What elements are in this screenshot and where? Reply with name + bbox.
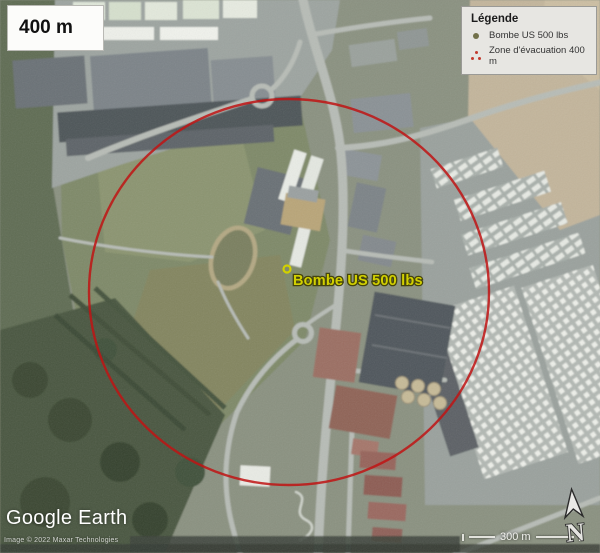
satellite-map[interactable]: Bombe US 500 lbs — [0, 0, 600, 553]
north-arrow: N — [553, 486, 594, 549]
evacuation-zone-icon — [471, 51, 482, 61]
scale-annotation-box: 400 m — [7, 5, 104, 51]
legend-item-label: Bombe US 500 lbs — [489, 30, 568, 41]
scale-bar-line — [469, 536, 495, 538]
north-label: N — [565, 517, 586, 548]
scale-bar-label: 300 m — [500, 531, 531, 543]
legend: Légende Bombe US 500 lbs Zone d'évacuati… — [461, 6, 597, 75]
legend-item-label: Zone d'évacuation 400 m — [489, 45, 589, 67]
imagery-copyright: Image © 2022 Maxar Technologies — [4, 537, 118, 544]
scale-bar-tick — [462, 534, 464, 541]
bomb-point-icon — [471, 31, 482, 41]
legend-item-zone: Zone d'évacuation 400 m — [471, 45, 589, 67]
legend-item-bomb: Bombe US 500 lbs — [471, 30, 589, 41]
legend-title: Légende — [471, 13, 589, 25]
bomb-marker-label: Bombe US 500 lbs — [293, 273, 423, 289]
scale-annotation-label: 400 m — [19, 17, 73, 39]
map-viewport[interactable]: Bombe US 500 lbs 400 m Légende Bombe US … — [0, 0, 600, 553]
north-arrow-icon — [563, 488, 583, 517]
google-earth-watermark: Google Earth — [6, 507, 127, 530]
